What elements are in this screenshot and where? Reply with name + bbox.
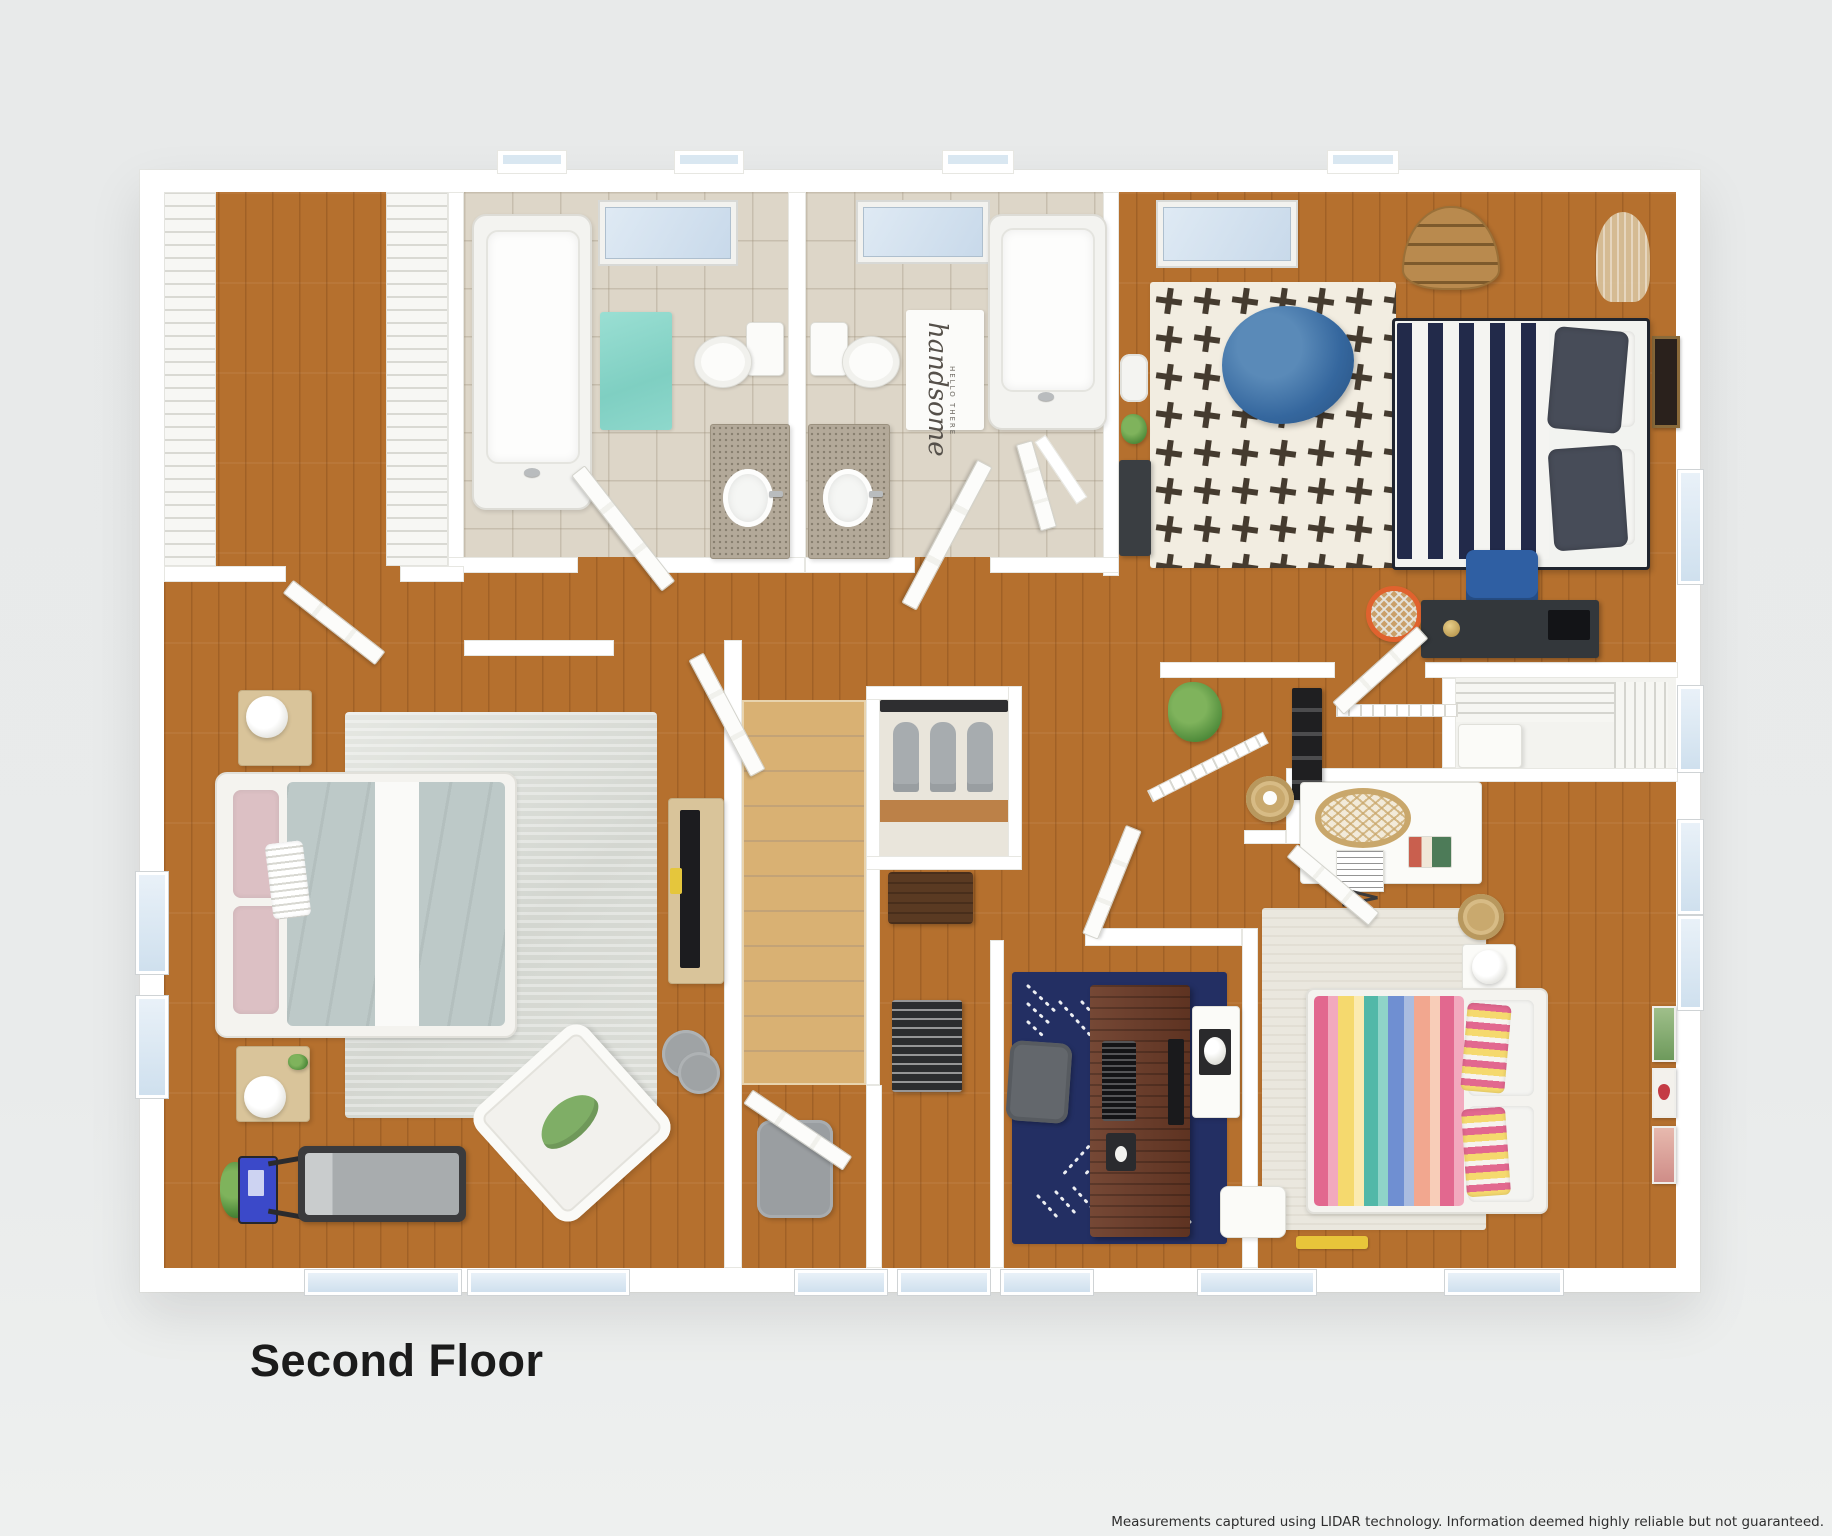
wall <box>866 1085 882 1268</box>
skylight-glass <box>503 155 561 164</box>
rainbow-bed <box>1306 988 1548 1214</box>
navy-striped-bed <box>1392 318 1650 570</box>
white-bench <box>1220 1186 1286 1238</box>
bathtub <box>472 214 592 510</box>
skylight <box>600 202 736 264</box>
striped-pillow <box>1461 1107 1511 1198</box>
skylight <box>1158 202 1296 266</box>
bathtub-faucet <box>524 468 540 477</box>
staircase <box>742 700 866 1085</box>
stair-railing <box>1336 704 1458 717</box>
skylight-glass <box>948 155 1008 164</box>
lamp <box>246 696 288 738</box>
wall <box>866 856 1022 870</box>
flower-side-table <box>1192 1006 1240 1118</box>
white-flowers <box>1204 1037 1226 1065</box>
wall <box>805 557 915 573</box>
yellow-book <box>670 868 682 894</box>
vanity <box>808 424 890 559</box>
disclaimer-text: Measurements captured using LIDAR techno… <box>1111 1514 1824 1530</box>
bathtub-basin <box>1001 228 1095 392</box>
dark-pillow <box>1548 445 1629 552</box>
wall-art-bow <box>1652 1068 1676 1118</box>
office-chair <box>1005 1040 1072 1124</box>
window <box>1678 916 1703 1010</box>
window <box>898 1270 990 1295</box>
wall <box>1160 662 1335 678</box>
wall <box>164 566 286 582</box>
macrame-hanging <box>1596 212 1650 302</box>
office-desk <box>1090 985 1190 1237</box>
wall <box>1244 830 1286 844</box>
green-pillow <box>531 1084 607 1158</box>
sink-faucet <box>769 491 783 497</box>
wall <box>1085 928 1242 946</box>
treadmill <box>298 1146 466 1222</box>
window <box>795 1270 887 1295</box>
treadmill-belt <box>305 1153 459 1215</box>
flower-tray <box>1199 1029 1231 1075</box>
wall <box>464 640 614 656</box>
basket-with-candle <box>1246 776 1294 822</box>
window <box>1445 1270 1563 1295</box>
yellow-toy <box>1296 1236 1368 1249</box>
striped-pillow <box>1460 1002 1512 1094</box>
monitor <box>1168 1039 1184 1125</box>
printer-stand <box>892 1000 962 1092</box>
red-bow <box>1658 1084 1670 1100</box>
bathtub-basin <box>486 230 580 464</box>
wall <box>1300 768 1678 782</box>
treadmill-screen <box>248 1170 264 1196</box>
wall <box>400 566 464 582</box>
candle <box>1263 791 1277 805</box>
closet-shelves-right <box>386 192 448 566</box>
stair-baluster <box>967 722 993 792</box>
lamp <box>1472 950 1506 984</box>
toilet-bowl <box>694 336 752 388</box>
tv <box>680 810 700 968</box>
mouse-pad <box>1106 1133 1136 1171</box>
wall-art <box>1652 1126 1676 1184</box>
plant <box>1168 682 1222 742</box>
keyboard <box>1102 1041 1136 1121</box>
wall <box>655 557 805 573</box>
gold-ornament <box>1443 620 1460 637</box>
master-bed <box>215 772 517 1038</box>
desk <box>1421 600 1599 658</box>
wall <box>990 557 1119 573</box>
navy-duvet <box>1397 323 1549 559</box>
lamp <box>244 1076 286 1118</box>
window <box>1678 686 1703 772</box>
wall <box>1008 686 1022 870</box>
bathtub-faucet <box>1038 392 1054 401</box>
window <box>468 1270 629 1295</box>
window <box>136 872 168 974</box>
wall <box>1442 678 1456 768</box>
rainbow-duvet <box>1314 996 1464 1206</box>
vanity <box>710 424 790 559</box>
gold-basket <box>1458 894 1504 940</box>
window <box>136 996 168 1098</box>
round-side-table <box>678 1052 720 1094</box>
wood-bench <box>888 872 973 924</box>
pink-pillow <box>233 906 279 1014</box>
window <box>305 1270 461 1295</box>
rattan-chair <box>1315 788 1411 848</box>
window <box>1678 470 1703 584</box>
wall <box>866 686 1022 700</box>
floor-plan-page: HELLO THERE handsome <box>0 0 1832 1536</box>
toilet-tank <box>746 322 784 376</box>
closet-drawer-unit <box>1458 724 1522 768</box>
wall <box>1425 662 1678 678</box>
window <box>1001 1270 1093 1295</box>
wall <box>990 940 1004 1268</box>
hamper <box>1120 354 1148 402</box>
laptop <box>1548 610 1590 640</box>
skylight <box>858 202 988 262</box>
window <box>1198 1270 1316 1295</box>
wall <box>788 192 806 562</box>
wire-shelf <box>1614 682 1668 768</box>
sink-faucet <box>869 491 883 497</box>
handsome-bath-mat: HELLO THERE handsome <box>906 310 984 430</box>
wall-art <box>1652 336 1680 428</box>
stair-baluster <box>893 722 919 792</box>
dresser <box>1119 460 1151 556</box>
bathtub <box>988 214 1107 430</box>
teal-bath-mat <box>600 312 672 430</box>
closet-shelves-left <box>164 192 216 566</box>
wall <box>448 192 464 572</box>
stair-baluster <box>930 722 956 792</box>
dark-pillow <box>1547 326 1630 434</box>
floor-title: Second Floor <box>250 1335 544 1387</box>
sink <box>723 469 773 527</box>
plant-small <box>288 1054 308 1070</box>
bath-mat-text: handsome <box>922 322 952 457</box>
mouse <box>1115 1146 1127 1162</box>
window <box>1678 820 1703 914</box>
skylight-glass <box>1333 155 1393 164</box>
skylight-glass <box>680 155 738 164</box>
wall <box>866 686 880 1085</box>
book <box>1408 836 1452 868</box>
sink <box>823 469 873 527</box>
stair-beam <box>880 700 1008 712</box>
lower-floor-strip <box>880 800 1008 822</box>
plant <box>1121 414 1147 444</box>
wall-art-flowers <box>1652 1006 1676 1062</box>
toilet-bowl <box>842 336 900 388</box>
wall <box>448 557 578 573</box>
duvet-white-stripe <box>375 782 419 1026</box>
